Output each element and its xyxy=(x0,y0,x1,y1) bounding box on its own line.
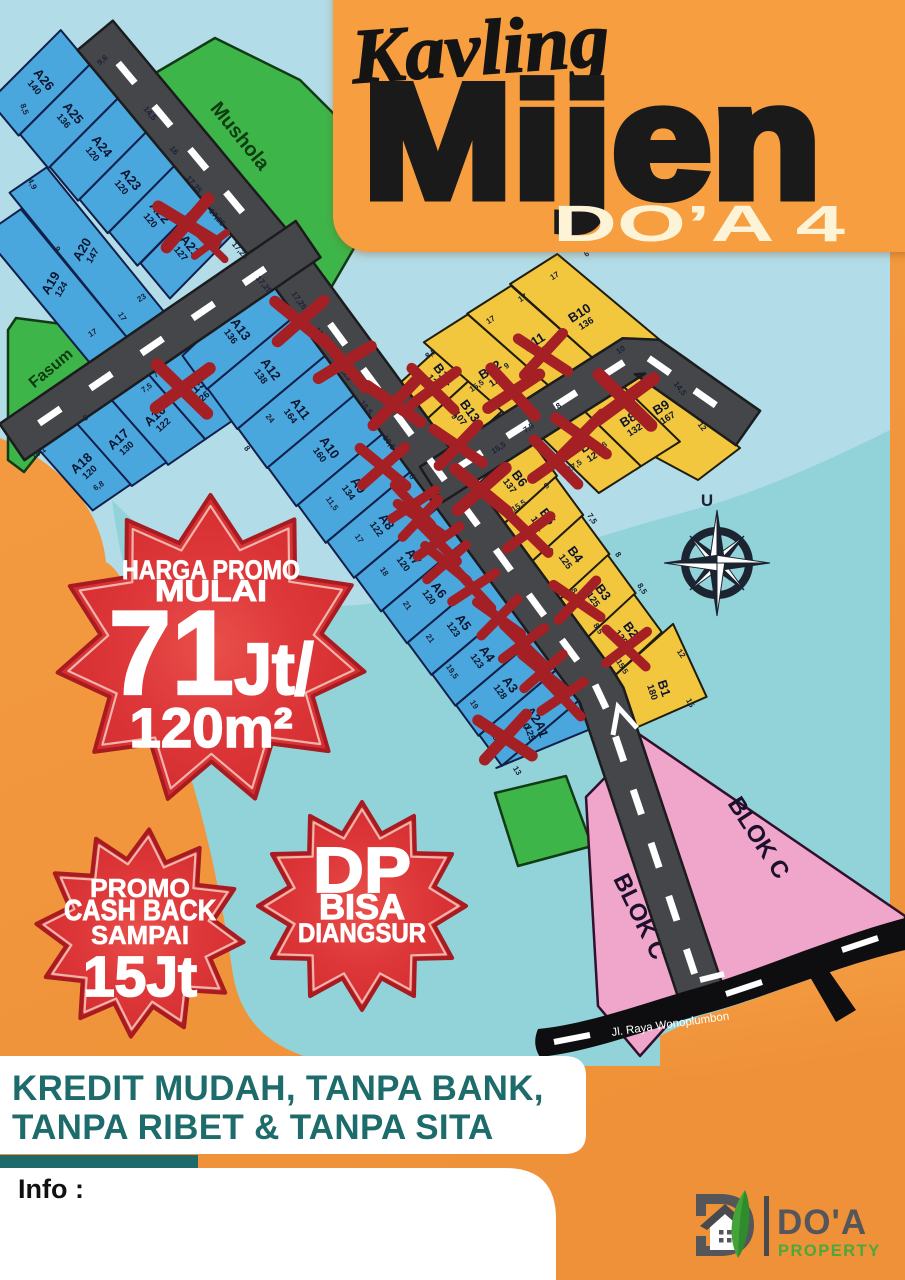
svg-text:U: U xyxy=(701,491,713,510)
svg-text:DO’A 4: DO’A 4 xyxy=(553,195,846,252)
svg-text:KREDIT MUDAH, TANPA BANK,: KREDIT MUDAH, TANPA BANK, xyxy=(12,1069,544,1108)
svg-text:TANPA RIBET & TANPA SITA: TANPA RIBET & TANPA SITA xyxy=(12,1108,494,1147)
svg-text:120m²: 120m² xyxy=(130,696,293,759)
svg-text:PROPERTY: PROPERTY xyxy=(778,1242,881,1260)
svg-text:Info :: Info : xyxy=(18,1174,84,1204)
svg-text:DO'A: DO'A xyxy=(777,1203,867,1242)
svg-text:15Jt: 15Jt xyxy=(83,945,197,1009)
svg-text:DIANGSUR: DIANGSUR xyxy=(298,918,426,948)
